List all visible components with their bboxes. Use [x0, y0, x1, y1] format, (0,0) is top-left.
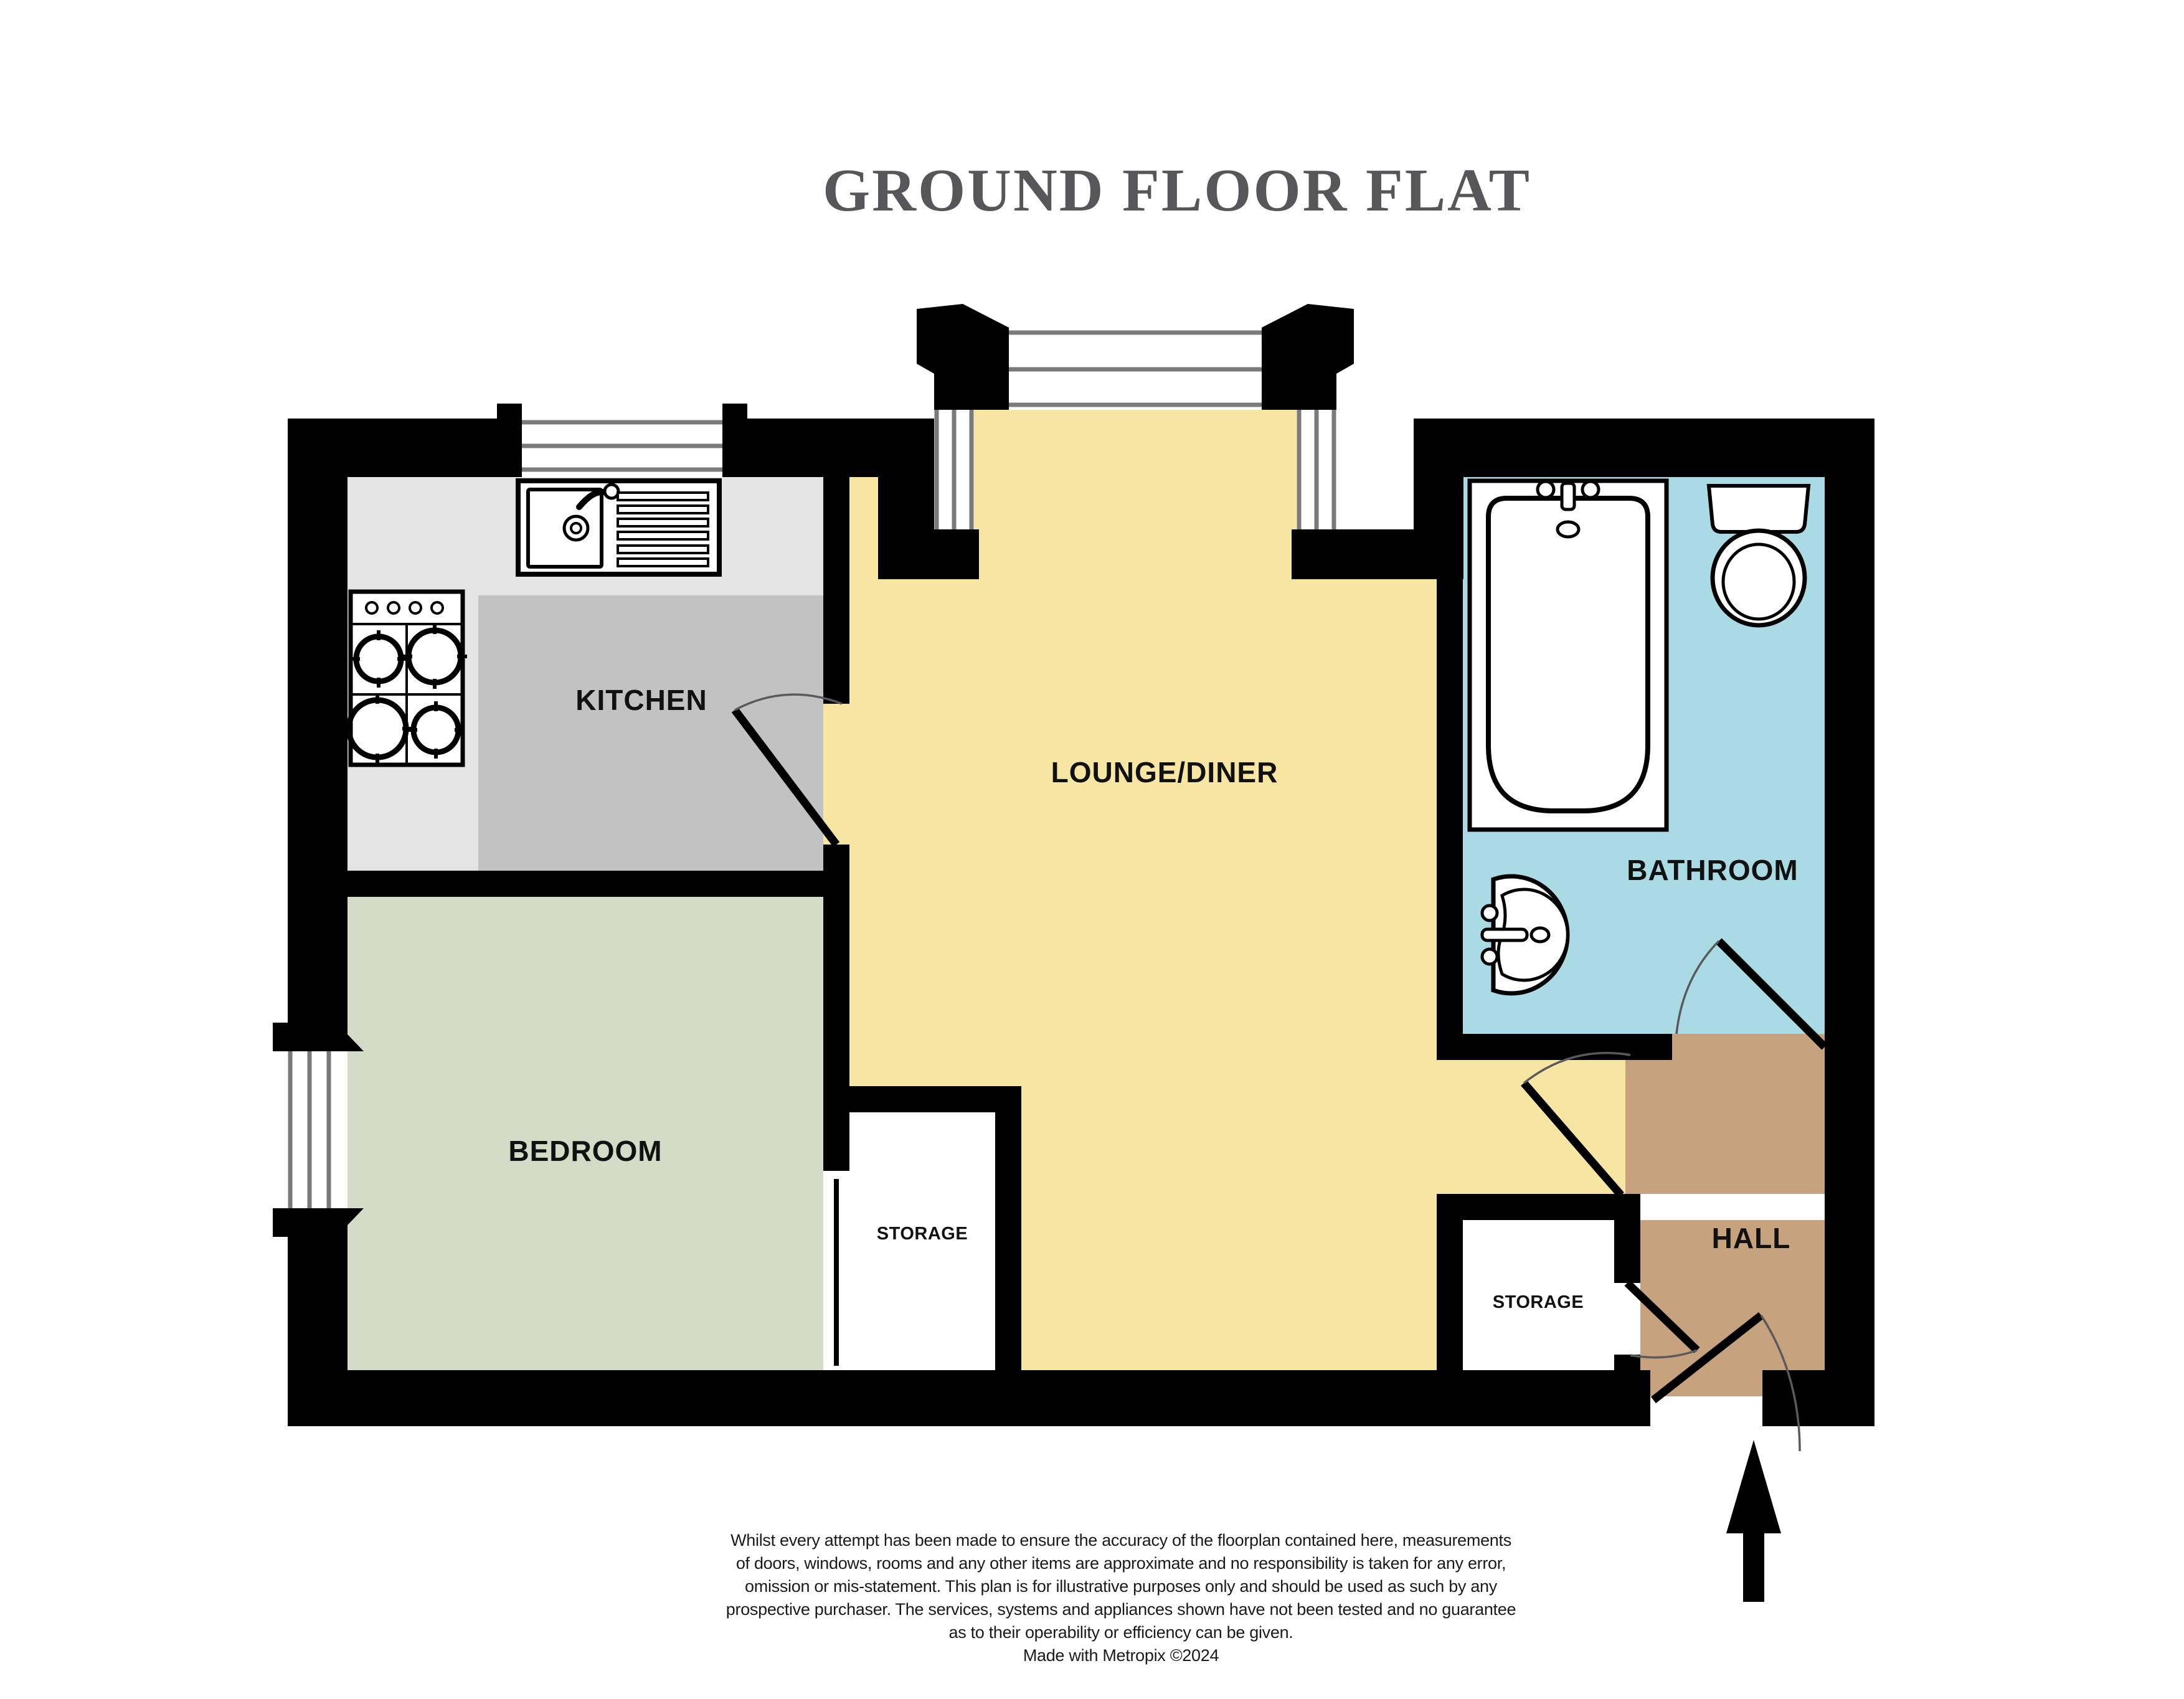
kitchen-sink-icon	[518, 481, 719, 574]
toilet-icon	[1709, 486, 1808, 625]
wall-right	[1825, 419, 1874, 1426]
wall-kitchen-lounge-upper	[823, 477, 849, 704]
entrance-arrow-icon	[1726, 1440, 1781, 1602]
kitchen-label: KITCHEN	[575, 684, 707, 716]
wall-storage-hall-top	[1437, 1194, 1640, 1220]
bay-corner-right	[1262, 304, 1354, 410]
wall-storage-hall-left	[1437, 1220, 1463, 1370]
lounge-bay-floor	[974, 410, 1297, 529]
disclaimer-credit: Made with Metropix ©2024	[1023, 1646, 1219, 1665]
wall-storage-hall-right	[1614, 1220, 1640, 1283]
disclaimer-line-2: of doors, windows, rooms and any other i…	[736, 1554, 1506, 1573]
floorplan-page: GROUND FLOOR FLAT KITCHEN LOUNGE/DINER B…	[0, 0, 2184, 1699]
wall-lounge-front-left	[878, 529, 979, 579]
bath-icon	[1470, 481, 1666, 830]
disclaimer-line-3: omission or mis-statement. This plan is …	[745, 1577, 1498, 1596]
wall-left-upper	[288, 419, 347, 1051]
hall-floor-upper	[1625, 1060, 1825, 1194]
wall-storage-left-right	[995, 1086, 1021, 1370]
lounge-bay-opening-floor	[979, 529, 1292, 579]
storage-hall-label: STORAGE	[1493, 1292, 1584, 1312]
bedroom-window	[288, 1051, 347, 1208]
wall-bathroom-bottom	[1437, 1034, 1672, 1060]
kitchen-window-flank-right	[722, 404, 747, 477]
wall-top-bathroom	[1414, 419, 1874, 477]
wall-kitchen-lounge-stub	[823, 845, 849, 871]
wall-bottom-left	[288, 1370, 1650, 1426]
bay-corner-left	[917, 304, 1009, 410]
wall-bedroom-storage	[823, 897, 849, 1171]
page-title: GROUND FLOOR FLAT	[823, 157, 1531, 224]
kitchen-counter-area	[478, 595, 823, 871]
disclaimer-line-4: prospective purchaser. The services, sys…	[726, 1600, 1516, 1619]
disclaimer-line-1: Whilst every attempt has been made to en…	[730, 1531, 1511, 1550]
bathroom-doorway-floor	[1672, 1034, 1825, 1060]
hall-label: HALL	[1712, 1222, 1791, 1254]
floorplan-svg: GROUND FLOOR FLAT KITCHEN LOUNGE/DINER B…	[0, 0, 2184, 1699]
wall-kitchen-bedroom	[288, 871, 849, 897]
wall-lounge-bathroom	[1437, 477, 1463, 1060]
hob-icon	[343, 592, 467, 765]
disclaimer-line-5: as to their operability or efficiency ca…	[948, 1623, 1293, 1642]
wall-bottom-right	[1762, 1370, 1874, 1426]
kitchen-doorway-floor	[823, 704, 849, 845]
lounge-label: LOUNGE/DINER	[1051, 756, 1279, 788]
bedroom-label: BEDROOM	[508, 1135, 662, 1167]
kitchen-window-flank-left	[497, 404, 522, 477]
bedroom-floor	[347, 897, 823, 1370]
kitchen-window	[522, 419, 722, 477]
bathroom-label: BATHROOM	[1627, 854, 1798, 886]
wall-storage-left-top	[823, 1086, 1021, 1112]
disclaimer: Whilst every attempt has been made to en…	[726, 1531, 1516, 1665]
storage-left-label: STORAGE	[877, 1224, 968, 1244]
